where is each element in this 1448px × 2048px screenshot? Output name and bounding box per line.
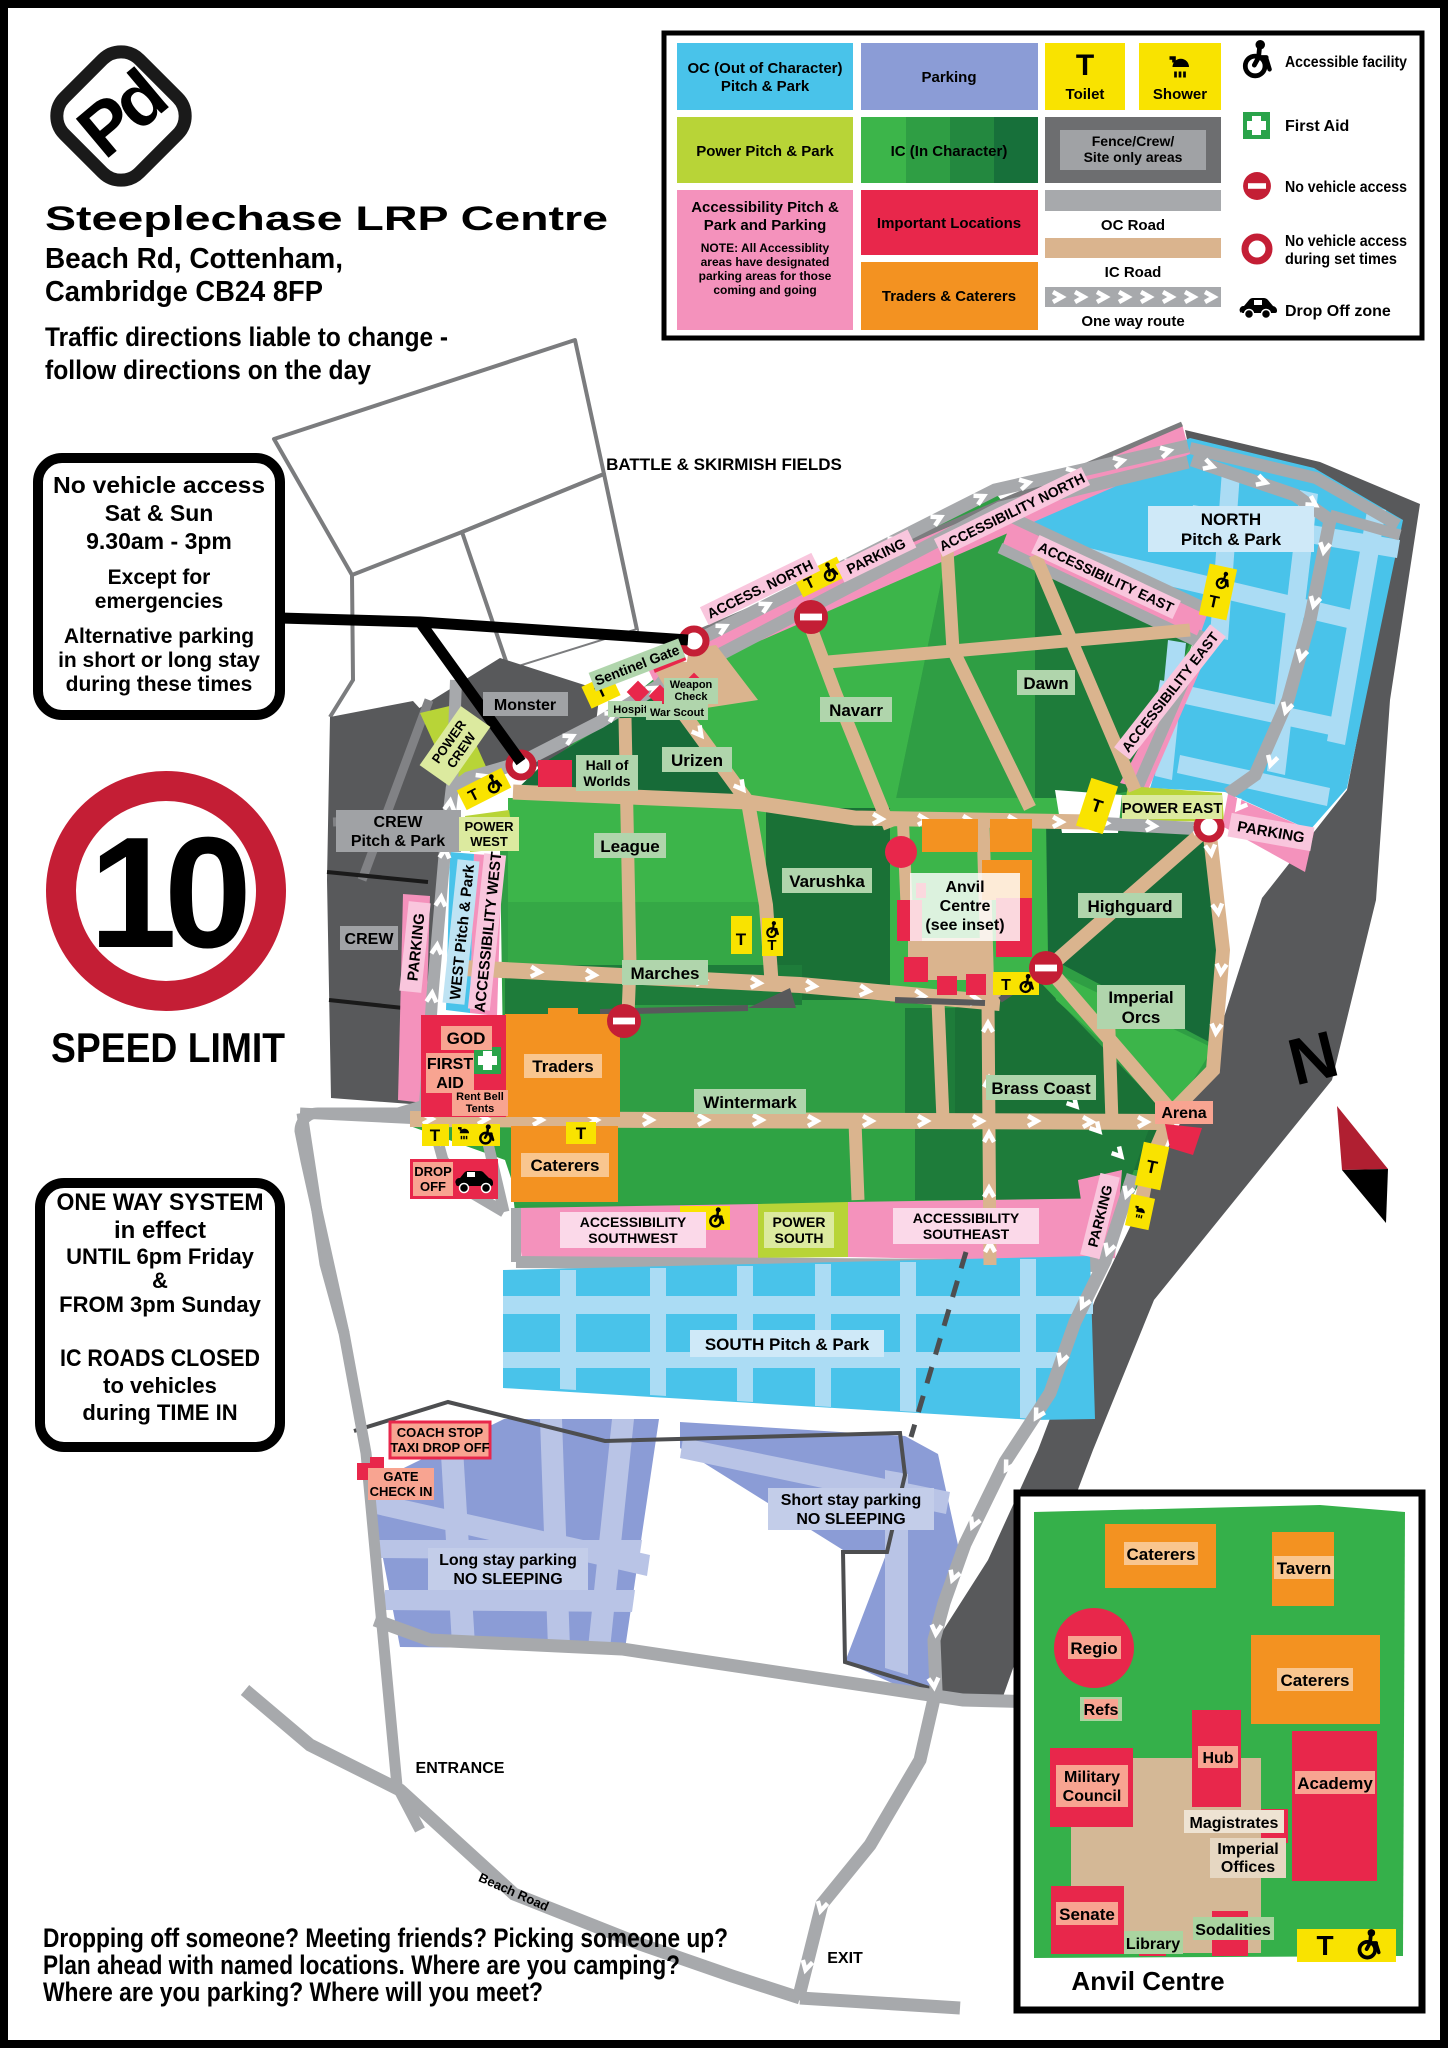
svg-text:IC (In Character): IC (In Character) xyxy=(891,143,1008,160)
svg-text:No vehicle access: No vehicle access xyxy=(53,472,265,498)
svg-text:9.30am - 3pm: 9.30am - 3pm xyxy=(86,528,232,554)
svg-text:Traders: Traders xyxy=(532,1057,593,1076)
svg-text:CREW: CREW xyxy=(345,931,395,948)
svg-text:Dropping off someone? Meeting: Dropping off someone? Meeting friends? P… xyxy=(43,1923,728,1953)
svg-text:Short stay parking: Short stay parking xyxy=(781,1492,921,1509)
svg-text:Wintermark: Wintermark xyxy=(703,1093,797,1112)
svg-text:Imperial: Imperial xyxy=(1217,1841,1278,1858)
svg-text:ACCESSIBILITY: ACCESSIBILITY xyxy=(580,1214,687,1230)
svg-text:T: T xyxy=(736,930,747,949)
svg-text:Orcs: Orcs xyxy=(1122,1008,1161,1027)
svg-text:Where are you parking? Where w: Where are you parking? Where will you me… xyxy=(43,1977,543,2007)
svg-text:Tavern: Tavern xyxy=(1277,1559,1332,1578)
svg-text:Pitch & Park: Pitch & Park xyxy=(721,78,810,95)
svg-text:GATE: GATE xyxy=(383,1469,418,1484)
svg-text:SPEED LIMIT: SPEED LIMIT xyxy=(51,1024,285,1071)
svg-text:Magistrates: Magistrates xyxy=(1190,1815,1279,1832)
svg-text:BATTLE & SKIRMISH FIELDS: BATTLE & SKIRMISH FIELDS xyxy=(606,455,842,474)
svg-text:ACCESSIBILITY: ACCESSIBILITY xyxy=(913,1210,1020,1226)
svg-text:Pitch & Park: Pitch & Park xyxy=(351,833,445,850)
svg-text:POWER: POWER xyxy=(464,819,514,834)
svg-text:Cambridge CB24 8FP: Cambridge CB24 8FP xyxy=(45,276,323,308)
svg-text:Varushka: Varushka xyxy=(789,872,865,891)
svg-text:Except for: Except for xyxy=(108,566,211,589)
svg-text:T: T xyxy=(430,1126,441,1145)
svg-text:NOTE: All Accessiblity: NOTE: All Accessiblity xyxy=(701,241,830,255)
svg-text:Steeplechase LRP Centre: Steeplechase LRP Centre xyxy=(45,200,608,238)
svg-text:OC Road: OC Road xyxy=(1101,217,1165,234)
svg-text:Hall of: Hall of xyxy=(586,757,629,773)
svg-text:AID: AID xyxy=(436,1075,464,1092)
svg-text:Toilet: Toilet xyxy=(1066,86,1105,103)
svg-text:Drop Off zone: Drop Off zone xyxy=(1285,303,1391,320)
svg-text:OC (Out of Character): OC (Out of Character) xyxy=(687,60,842,77)
svg-text:10: 10 xyxy=(89,805,246,981)
svg-text:Navarr: Navarr xyxy=(829,701,883,720)
svg-text:Highguard: Highguard xyxy=(1088,897,1173,916)
svg-text:Anvil: Anvil xyxy=(945,879,984,896)
svg-text:No vehicle access: No vehicle access xyxy=(1285,233,1407,250)
svg-text:First Aid: First Aid xyxy=(1285,118,1349,135)
svg-text:T: T xyxy=(1316,1930,1333,1961)
svg-text:FIRST: FIRST xyxy=(427,1056,473,1073)
svg-text:Weapon: Weapon xyxy=(670,679,713,691)
svg-text:Site only areas: Site only areas xyxy=(1084,149,1183,165)
svg-text:Traders & Caterers: Traders & Caterers xyxy=(882,288,1016,305)
svg-text:Caterers: Caterers xyxy=(1281,1671,1350,1690)
svg-text:POWER EAST: POWER EAST xyxy=(1122,800,1223,817)
svg-text:NO SLEEPING: NO SLEEPING xyxy=(796,1511,905,1528)
svg-text:T: T xyxy=(576,1124,587,1143)
svg-text:EXIT: EXIT xyxy=(827,1950,863,1967)
svg-text:TAXI DROP OFF: TAXI DROP OFF xyxy=(390,1440,489,1455)
svg-text:DROP: DROP xyxy=(414,1164,452,1179)
svg-text:FROM 3pm Sunday: FROM 3pm Sunday xyxy=(59,1292,261,1317)
svg-text:Sat & Sun: Sat & Sun xyxy=(105,500,214,526)
svg-text:Marches: Marches xyxy=(631,964,700,983)
svg-text:Library: Library xyxy=(1126,1936,1180,1953)
svg-text:during TIME IN: during TIME IN xyxy=(82,1400,237,1425)
svg-text:Traffic directions liable to c: Traffic directions liable to change - xyxy=(45,322,448,352)
svg-text:Accessible facility: Accessible facility xyxy=(1285,54,1407,71)
svg-text:Park and Parking: Park and Parking xyxy=(704,217,827,234)
svg-text:T: T xyxy=(767,937,776,954)
svg-text:Tents: Tents xyxy=(466,1103,495,1115)
svg-text:Anvil Centre: Anvil Centre xyxy=(1071,1966,1224,1996)
svg-text:ONE WAY SYSTEM: ONE WAY SYSTEM xyxy=(57,1189,264,1216)
svg-text:POWER: POWER xyxy=(773,1214,826,1230)
svg-text:SOUTH: SOUTH xyxy=(775,1230,824,1246)
svg-text:in short or long stay: in short or long stay xyxy=(58,649,260,672)
svg-text:parking areas for those: parking areas for those xyxy=(699,269,832,283)
svg-text:Military: Military xyxy=(1064,1769,1120,1786)
svg-text:Check: Check xyxy=(674,691,708,703)
svg-text:areas have designated: areas have designated xyxy=(701,255,830,269)
svg-text:Plan ahead with named location: Plan ahead with named locations. Where a… xyxy=(43,1950,680,1980)
svg-text:&: & xyxy=(152,1268,168,1293)
svg-text:Hub: Hub xyxy=(1202,1750,1233,1767)
svg-text:One way route: One way route xyxy=(1081,313,1184,330)
svg-text:Dawn: Dawn xyxy=(1023,674,1068,693)
svg-text:Power Pitch & Park: Power Pitch & Park xyxy=(696,143,834,160)
svg-text:to vehicles: to vehicles xyxy=(103,1373,217,1398)
svg-text:(see inset): (see inset) xyxy=(925,917,1004,934)
svg-text:Centre: Centre xyxy=(940,898,991,915)
svg-text:T: T xyxy=(1001,977,1011,994)
svg-text:WEST: WEST xyxy=(470,834,508,849)
svg-text:CHECK IN: CHECK IN xyxy=(370,1484,433,1499)
svg-text:Imperial: Imperial xyxy=(1108,988,1173,1007)
svg-text:Caterers: Caterers xyxy=(1127,1545,1196,1564)
svg-text:during set times: during set times xyxy=(1285,251,1397,268)
svg-text:No vehicle access: No vehicle access xyxy=(1285,179,1407,196)
svg-text:Fence/Crew/: Fence/Crew/ xyxy=(1092,133,1175,149)
svg-text:Accessibility Pitch &: Accessibility Pitch & xyxy=(691,199,839,216)
svg-text:SOUTHEAST: SOUTHEAST xyxy=(923,1226,1010,1242)
svg-text:War Scout: War Scout xyxy=(650,707,704,719)
svg-text:Worlds: Worlds xyxy=(583,773,630,789)
svg-text:IC Road: IC Road xyxy=(1105,264,1162,281)
svg-text:UNTIL 6pm Friday: UNTIL 6pm Friday xyxy=(66,1244,255,1269)
svg-text:emergencies: emergencies xyxy=(95,590,223,613)
svg-text:Sodalities: Sodalities xyxy=(1195,1922,1271,1939)
svg-text:SOUTH Pitch & Park: SOUTH Pitch & Park xyxy=(705,1335,870,1354)
svg-text:Rent Bell: Rent Bell xyxy=(456,1091,504,1103)
svg-text:CREW: CREW xyxy=(374,814,424,831)
svg-text:COACH STOP: COACH STOP xyxy=(397,1425,484,1440)
svg-text:Beach Rd, Cottenham,: Beach Rd, Cottenham, xyxy=(45,243,343,275)
svg-text:Urizen: Urizen xyxy=(671,751,723,770)
svg-text:Monster: Monster xyxy=(494,697,556,714)
svg-text:GOD: GOD xyxy=(447,1029,486,1048)
svg-text:Important Locations: Important Locations xyxy=(877,215,1021,232)
svg-text:Long stay parking: Long stay parking xyxy=(439,1552,577,1569)
svg-text:IC ROADS CLOSED: IC ROADS CLOSED xyxy=(60,1345,260,1372)
svg-text:ENTRANCE: ENTRANCE xyxy=(416,1760,505,1777)
svg-text:follow directions on the day: follow directions on the day xyxy=(45,355,371,385)
svg-text:League: League xyxy=(600,837,660,856)
svg-text:Refs: Refs xyxy=(1084,1702,1119,1719)
svg-text:Caterers: Caterers xyxy=(531,1156,600,1175)
svg-text:Pitch & Park: Pitch & Park xyxy=(1181,530,1282,549)
svg-text:OFF: OFF xyxy=(420,1179,446,1194)
svg-text:T: T xyxy=(1076,49,1094,82)
svg-text:Arena: Arena xyxy=(1161,1105,1206,1122)
svg-text:Parking: Parking xyxy=(921,69,976,86)
svg-text:NORTH: NORTH xyxy=(1201,510,1261,529)
svg-text:Senate: Senate xyxy=(1059,1905,1115,1924)
svg-text:Alternative parking: Alternative parking xyxy=(64,625,254,648)
svg-text:SOUTHWEST: SOUTHWEST xyxy=(588,1230,678,1246)
svg-text:Offices: Offices xyxy=(1221,1859,1275,1876)
svg-text:Brass Coast: Brass Coast xyxy=(991,1079,1091,1098)
svg-text:coming and going: coming and going xyxy=(713,283,816,297)
svg-text:Shower: Shower xyxy=(1153,86,1207,103)
svg-text:Council: Council xyxy=(1063,1788,1122,1805)
svg-text:NO SLEEPING: NO SLEEPING xyxy=(453,1571,562,1588)
svg-text:during these times: during these times xyxy=(66,673,253,696)
svg-text:Academy: Academy xyxy=(1297,1774,1373,1793)
svg-text:in effect: in effect xyxy=(114,1217,206,1244)
svg-text:Regio: Regio xyxy=(1070,1639,1117,1658)
